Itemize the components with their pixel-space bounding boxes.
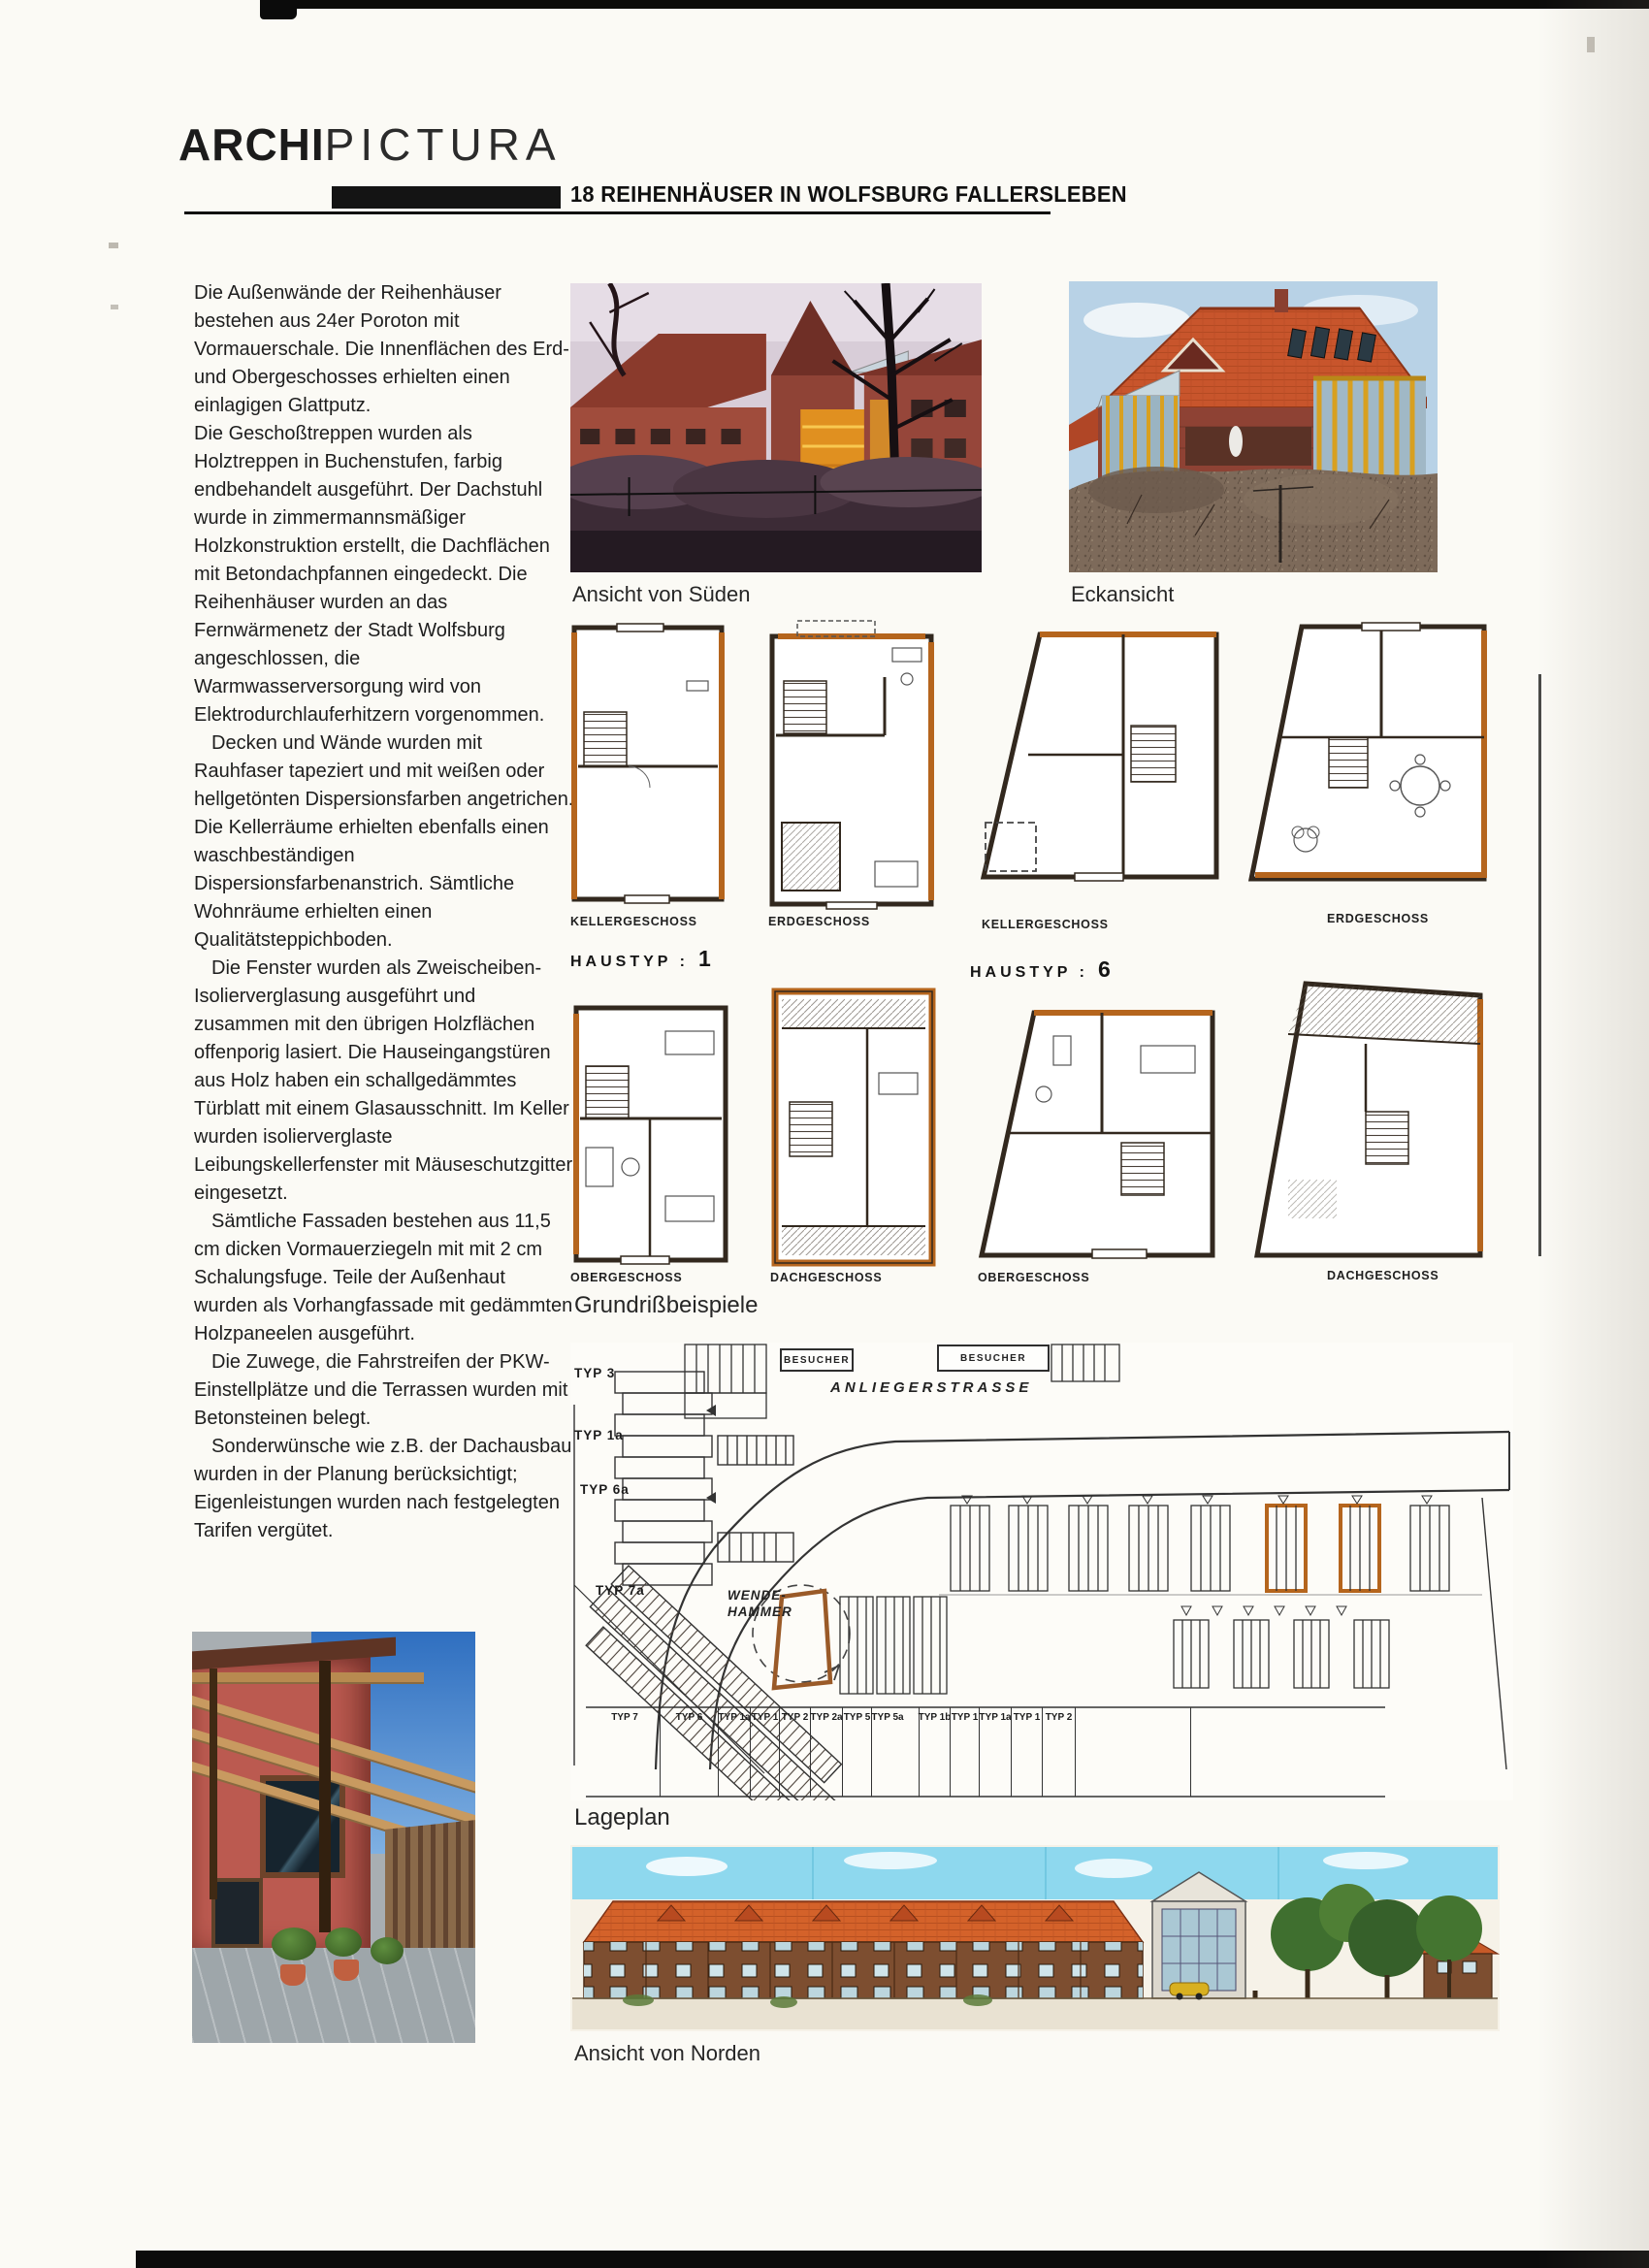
- photo-flower-pot: [334, 1960, 359, 1981]
- scan-speck: [109, 243, 118, 248]
- page-title: 18 REIHENHÄUSER IN WOLFSBURG FALLERSLEBE…: [570, 181, 1127, 208]
- paragraph: Die Außenwände der Reihenhäuser bestehen…: [194, 279, 574, 420]
- logo-black-bar: [332, 186, 561, 209]
- logo-light-part: PICTURA: [325, 119, 562, 170]
- siteplan-lot-label: TYP 2: [1046, 1712, 1073, 1797]
- scan-artifact-top: [260, 0, 1649, 9]
- scan-speck: [111, 305, 118, 309]
- photo-pergola-beam: [192, 1672, 424, 1682]
- plan-haustyp6-kellergeschoss: [978, 629, 1222, 883]
- caption-south-view: Ansicht von Süden: [572, 582, 750, 607]
- magazine-logo: ARCHIPICTURA: [178, 122, 562, 167]
- siteplan-lot-cell: TYP 1: [1011, 1707, 1042, 1797]
- photo-plant: [325, 1928, 362, 1957]
- siteplan-lot-cell: TYP 5: [842, 1707, 871, 1797]
- siteplan-lot-label: TYP 1: [952, 1712, 979, 1797]
- photo-south-view: [570, 283, 982, 572]
- logo-bold-part: ARCHI: [178, 119, 325, 170]
- siteplan-lot-label: TYP 1a: [979, 1712, 1011, 1797]
- plan-haustyp1-erdgeschoss: [768, 619, 935, 910]
- siteplan-lot-cell: TYP 1a: [979, 1707, 1011, 1797]
- siteplan-type-label-typ1a: TYP 1a: [574, 1428, 624, 1442]
- haustyp6-label: HAUSTYP :6: [970, 956, 1111, 983]
- visitor-label-1: BESUCHER: [784, 1355, 850, 1366]
- scan-artifact-blob: [260, 0, 297, 19]
- plan-haustyp1-dachgeschoss: [770, 986, 937, 1269]
- siteplan-lot-cell: TYP 6: [660, 1707, 718, 1797]
- siteplan-type-label-typ7a: TYP 7a: [596, 1583, 645, 1598]
- visitor-label-2: BESUCHER: [960, 1353, 1026, 1364]
- caption-siteplan: Lageplan: [574, 1804, 670, 1831]
- siteplan-lot-row: TYP 7TYP 6TYP 1aTYP 1TYP 2TYP 2aTYP 5TYP…: [590, 1707, 1191, 1797]
- article-column: Die Außenwände der Reihenhäuser bestehen…: [194, 279, 574, 1545]
- plan-haustyp1-kellergeschoss: [570, 623, 726, 904]
- photo-plant: [272, 1928, 316, 1960]
- siteplan-lot-label: TYP 7: [611, 1712, 638, 1797]
- siteplan-lot-label: TYP 5: [844, 1712, 871, 1797]
- plan-label-dachgeschoss-1: DACHGESCHOSS: [770, 1271, 882, 1284]
- siteplan-lot-cell: TYP 1: [950, 1707, 979, 1797]
- siteplan-lot-cell: TYP 2: [779, 1707, 810, 1797]
- turning-circle-label: WENDE-HAMMER: [727, 1587, 817, 1620]
- caption-north-view: Ansicht von Norden: [574, 2041, 760, 2066]
- plan-label-kellergeschoss-6: KELLERGESCHOSS: [982, 918, 1109, 931]
- plan-haustyp1-obergeschoss: [572, 1002, 729, 1266]
- plan-haustyp6-dachgeschoss: [1249, 976, 1486, 1263]
- haustyp6-number: 6: [1098, 956, 1111, 982]
- siteplan-lot-cell: TYP 2a: [810, 1707, 842, 1797]
- haustyp1-label: HAUSTYP :1: [570, 946, 711, 972]
- siteplan-type-label-typ3: TYP 3: [574, 1366, 615, 1380]
- siteplan-lot-label: TYP 6: [676, 1712, 703, 1797]
- photo-door: [211, 1878, 263, 1948]
- siteplan-lot-label: TYP 1: [1014, 1712, 1041, 1797]
- plan-label-obergeschoss-6: OBERGESCHOSS: [978, 1271, 1089, 1284]
- siteplan-lot-cell: TYP 5a: [871, 1707, 903, 1797]
- plan-label-kellergeschoss-1: KELLERGESCHOSS: [570, 915, 697, 928]
- plan-haustyp6-obergeschoss: [976, 1007, 1218, 1261]
- photo-pergola-post: [319, 1661, 331, 1932]
- photo-terrace-figure: [192, 1632, 475, 2043]
- paragraph: Sämtliche Fassaden bestehen aus 11,5 cm …: [194, 1208, 574, 1348]
- siteplan-lot-cell: TYP 1: [750, 1707, 779, 1797]
- paragraph: Decken und Wände wurden mit Rauhfaser ta…: [194, 729, 574, 955]
- siteplan-lot-cell: TYP 1a: [718, 1707, 750, 1797]
- photo-pergola-post: [210, 1669, 217, 1898]
- photo-flower-pot: [280, 1964, 306, 1986]
- plan-label-obergeschoss-1: OBERGESCHOSS: [570, 1271, 682, 1284]
- siteplan-figure: BESUCHER BESUCHER ANLIEGERSTRASSE WENDE-…: [570, 1343, 1513, 1800]
- siteplan-lot-cell-empty: [1075, 1707, 1191, 1797]
- siteplan-lot-label: TYP 5a: [871, 1712, 903, 1797]
- visitor-parking-box-2: BESUCHER: [937, 1345, 1050, 1372]
- siteplan-lot-cell: TYP 7: [590, 1707, 660, 1797]
- haustyp1-number: 1: [698, 946, 711, 971]
- paragraph: Sonderwünsche wie z.B. der Dachausbau wu…: [194, 1433, 574, 1545]
- paragraph: Die Fenster wurden als Zweischeiben-Isol…: [194, 955, 574, 1208]
- header-rule: [184, 211, 1051, 214]
- siteplan-lot-label: TYP 1b: [919, 1712, 952, 1797]
- plan-label-erdgeschoss-6: ERDGESCHOSS: [1327, 912, 1429, 925]
- siteplan-lot-label: TYP 1: [752, 1712, 779, 1797]
- caption-corner-view: Eckansicht: [1071, 582, 1174, 607]
- paragraph: Die Geschoßtreppen wurden als Holztreppe…: [194, 420, 574, 729]
- siteplan-lot-label: TYP 1a: [718, 1712, 750, 1797]
- plan-label-dachgeschoss-6: DACHGESCHOSS: [1327, 1269, 1439, 1282]
- visitor-parking-box-1: BESUCHER: [780, 1348, 854, 1372]
- scan-artifact-bottom: [136, 2251, 1649, 2268]
- magazine-page: ARCHIPICTURA 18 REIHENHÄUSER IN WOLFSBUR…: [0, 0, 1649, 2268]
- siteplan-lot-label: TYP 2a: [810, 1712, 842, 1797]
- paragraph: Die Zuwege, die Fahrstreifen der PKW-Ein…: [194, 1348, 574, 1433]
- street-label: ANLIEGERSTRASSE: [830, 1379, 1032, 1396]
- photo-corner-view: [1069, 281, 1438, 572]
- haustyp1-text: HAUSTYP :: [570, 954, 689, 970]
- plan-label-erdgeschoss-1: ERDGESCHOSS: [768, 915, 870, 928]
- page-edge-shadow: [1538, 674, 1541, 1256]
- siteplan-lot-cell: TYP 2: [1042, 1707, 1075, 1797]
- scan-artifact-corner: [1587, 37, 1595, 52]
- haustyp6-text: HAUSTYP :: [970, 964, 1088, 981]
- caption-floor-plans: Grundrißbeispiele: [574, 1292, 758, 1319]
- siteplan-lot-label: TYP 2: [782, 1712, 809, 1797]
- siteplan-type-label-typ6a: TYP 6a: [580, 1482, 630, 1497]
- plan-haustyp6-erdgeschoss: [1245, 621, 1490, 885]
- elevation-north-figure: [570, 1845, 1500, 2031]
- siteplan-lot-cell: TYP 1b: [919, 1707, 950, 1797]
